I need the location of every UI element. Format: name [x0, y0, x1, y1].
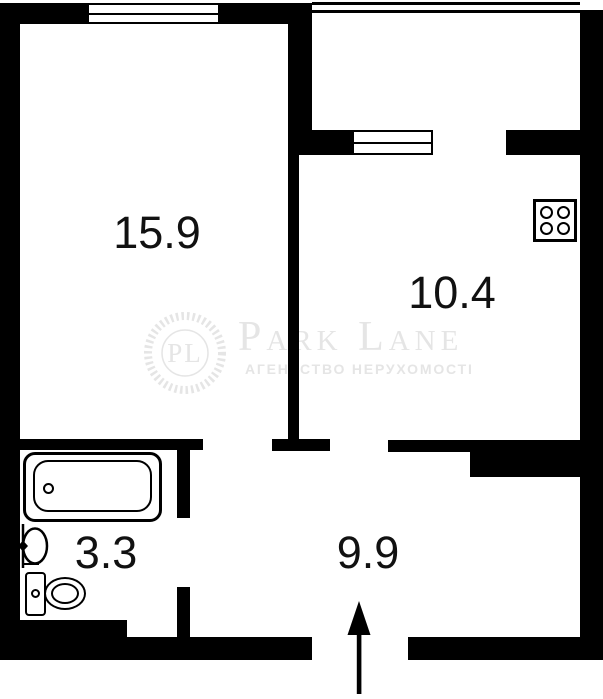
wall-living-bottom — [20, 439, 203, 450]
kitchen-area-label: 10.4 — [382, 270, 522, 316]
wall-top-left-segment — [0, 3, 88, 24]
toilet-bowl-inner — [51, 583, 79, 604]
kitchen-window — [352, 130, 433, 155]
wall-bottom-left-segment — [0, 637, 312, 660]
wall-bottom-right-segment — [408, 637, 580, 660]
stove-burner — [540, 206, 553, 219]
stove-burner — [557, 206, 570, 219]
wall-right — [580, 10, 603, 660]
sink-icon — [18, 520, 54, 572]
floor-plan: PL Park Lane АГЕНТСТВО НЕРУХОМОСТІ 15.9 … — [0, 0, 603, 699]
wall-kitchen-hallway-step — [470, 452, 580, 477]
wall-bathroom-upper — [177, 450, 190, 518]
hallway-area-label: 9.9 — [298, 530, 438, 576]
watermark-tagline: АГЕНТСТВО НЕРУХОМОСТІ — [245, 361, 474, 377]
living-room-window — [87, 3, 220, 24]
wall-bathroom-lower — [177, 587, 190, 637]
stove-burner — [540, 222, 553, 235]
window-pane-divider — [354, 142, 431, 144]
wall-kitchen-hallway — [388, 440, 580, 452]
watermark-monogram: PL — [167, 338, 203, 368]
stove-icon — [533, 199, 577, 242]
column-top-middle — [288, 3, 312, 155]
bathroom-area-label: 3.3 — [36, 530, 176, 576]
kitchen-balcony-wall-right — [506, 130, 580, 155]
bathtub-drain — [43, 483, 54, 494]
living-room-area-label: 15.9 — [87, 210, 227, 256]
balcony-rail-inner-line — [312, 10, 580, 13]
stove-burner — [557, 222, 570, 235]
entrance-arrow-icon — [343, 598, 376, 698]
window-pane-divider — [89, 13, 218, 15]
kitchen-balcony-wall-left — [312, 130, 353, 155]
watermark-wreath-icon: PL — [140, 308, 230, 398]
watermark-brand: Park Lane — [238, 318, 463, 356]
toilet-flush-button — [31, 589, 40, 598]
wall-bathroom-bottom-step — [18, 620, 127, 637]
balcony-rail-outer-line — [312, 2, 580, 5]
wall-left — [0, 3, 20, 660]
wall-living-kitchen — [288, 155, 299, 440]
wall-living-kitchen-foot — [272, 439, 330, 451]
